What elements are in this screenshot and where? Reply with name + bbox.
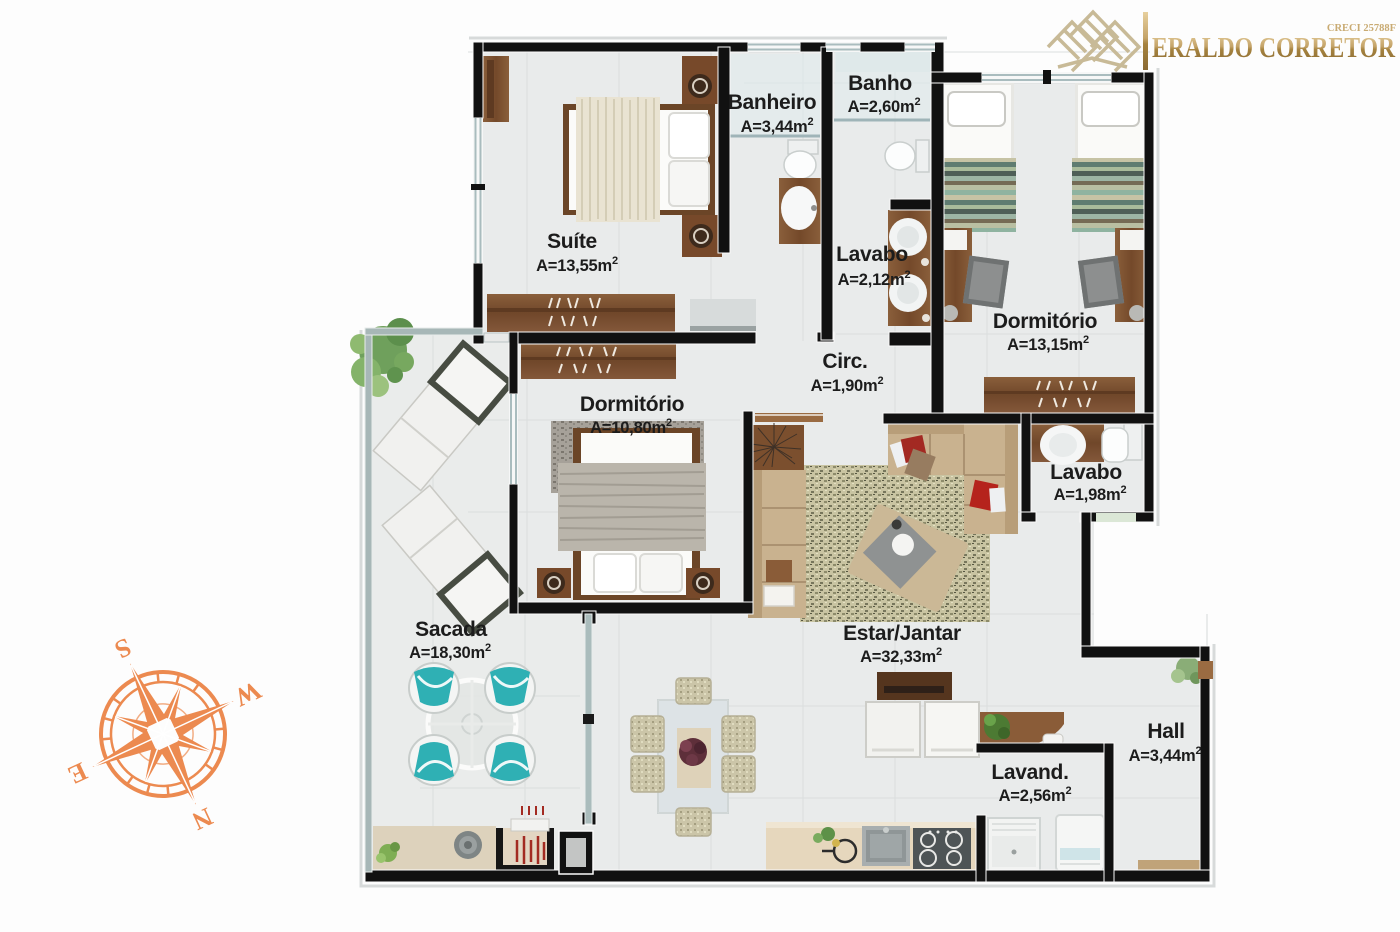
svg-text:Suíte: Suíte <box>547 230 597 253</box>
svg-text:A=13,15m2: A=13,15m2 <box>1007 334 1089 354</box>
svg-text:A=3,44m2: A=3,44m2 <box>741 116 814 136</box>
svg-text:A=32,33m2: A=32,33m2 <box>860 646 942 666</box>
svg-text:A=1,98m2: A=1,98m2 <box>1054 484 1127 504</box>
svg-text:Sacada: Sacada <box>415 618 487 641</box>
svg-text:Lavabo: Lavabo <box>1050 461 1122 484</box>
svg-text:A=2,56m2: A=2,56m2 <box>999 785 1072 805</box>
svg-text:ERALDO CORRETOR: ERALDO CORRETOR <box>1152 32 1396 64</box>
svg-text:Banho: Banho <box>848 72 912 95</box>
svg-text:A=3,44m2: A=3,44m2 <box>1129 745 1202 765</box>
svg-text:A=1,90m2: A=1,90m2 <box>811 375 884 395</box>
svg-text:A=10,80m2: A=10,80m2 <box>590 417 672 437</box>
svg-text:Lavabo: Lavabo <box>836 243 908 266</box>
svg-text:A=18,30m2: A=18,30m2 <box>409 642 491 662</box>
svg-text:A=13,55m2: A=13,55m2 <box>536 255 618 275</box>
svg-text:Dormitório: Dormitório <box>580 393 684 416</box>
svg-text:Lavand.: Lavand. <box>991 761 1068 784</box>
svg-text:A=2,12m2: A=2,12m2 <box>838 269 911 289</box>
svg-text:Estar/Jantar: Estar/Jantar <box>843 622 961 645</box>
svg-text:Dormitório: Dormitório <box>993 310 1097 333</box>
svg-text:A=2,60m2: A=2,60m2 <box>848 96 921 116</box>
svg-text:Circ.: Circ. <box>822 350 867 373</box>
svg-text:Hall: Hall <box>1147 720 1184 743</box>
svg-text:Banheiro: Banheiro <box>728 91 817 114</box>
